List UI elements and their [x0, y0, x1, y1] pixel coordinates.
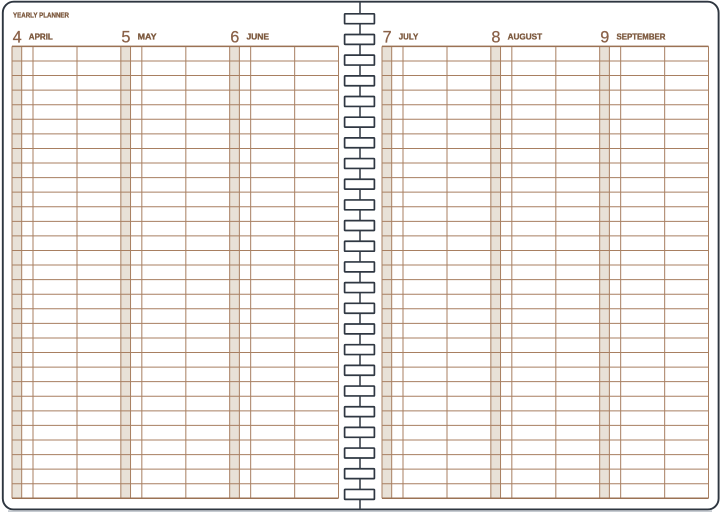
svg-text:JULY: JULY	[399, 33, 419, 42]
svg-text:SEPTEMBER: SEPTEMBER	[616, 33, 665, 42]
svg-text:AUGUST: AUGUST	[508, 33, 543, 42]
svg-text:4: 4	[13, 29, 22, 47]
svg-text:7: 7	[383, 29, 392, 47]
svg-text:MAY: MAY	[138, 33, 158, 42]
svg-text:YEARLY PLANNER: YEARLY PLANNER	[13, 13, 69, 20]
svg-text:5: 5	[121, 29, 130, 47]
svg-text:JUNE: JUNE	[246, 33, 269, 42]
svg-text:APRIL: APRIL	[29, 33, 53, 42]
svg-text:8: 8	[491, 29, 500, 47]
svg-text:6: 6	[230, 29, 239, 47]
svg-text:9: 9	[600, 29, 609, 47]
